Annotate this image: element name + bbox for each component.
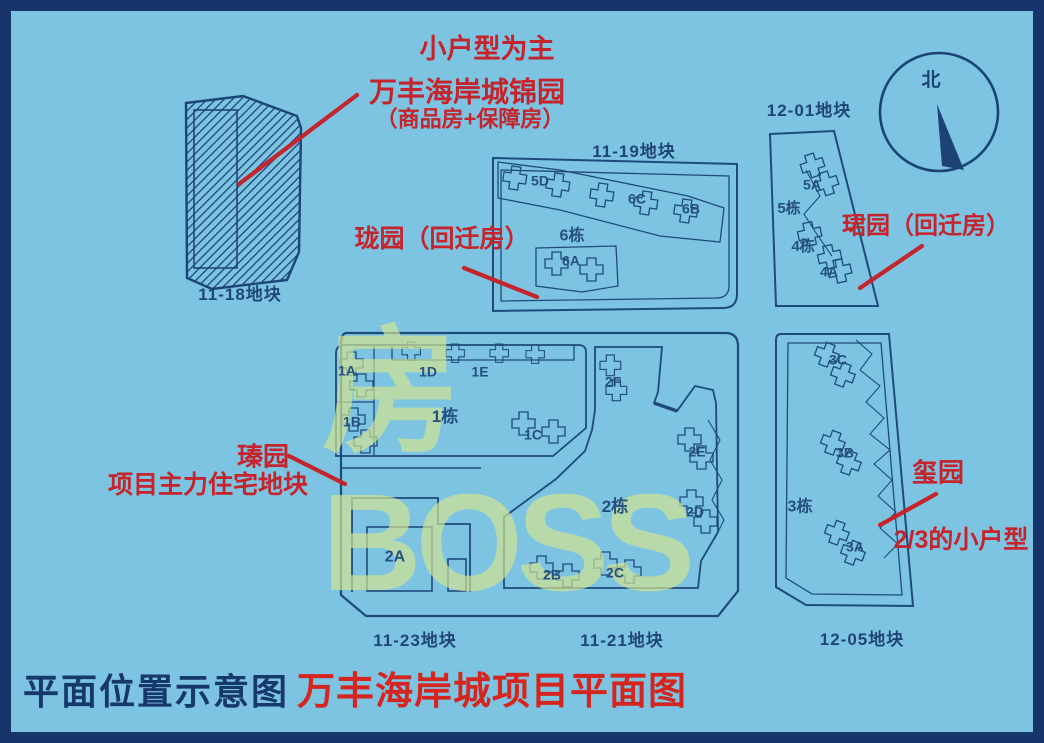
plot-11-19-shape bbox=[493, 158, 737, 311]
site-plan-image: 房BOSS 北 小户型为主 万丰海岸城锦园 （商品房+保障房） 珑园（回迁房） … bbox=[0, 0, 1044, 743]
building-label-1e: 1E bbox=[471, 365, 488, 380]
building-label-2c: 2C bbox=[606, 566, 624, 581]
building-label-1c: 1C bbox=[524, 428, 542, 443]
building-label-6a: 6A bbox=[562, 254, 580, 269]
caption-project-title: 万丰海岸城项目平面图 bbox=[297, 673, 687, 713]
plot-label-12-05: 12-05地块 bbox=[820, 631, 904, 649]
building-label-2dong: 2栋 bbox=[602, 498, 628, 516]
building-label-4a: 4A bbox=[820, 265, 838, 280]
annotation-junyuan: 珺园（回迁房） bbox=[842, 213, 1010, 238]
annotation-xiyuan-line1: 玺园 bbox=[912, 459, 964, 486]
building-label-2f: 2F bbox=[605, 375, 621, 390]
plot-label-12-01: 12-01地块 bbox=[767, 102, 851, 120]
building-label-1b: 1B bbox=[343, 415, 361, 430]
building-label-1d: 1D bbox=[419, 365, 437, 380]
building-label-2e: 2E bbox=[688, 445, 705, 460]
north-label: 北 bbox=[921, 71, 940, 91]
building-label-3c: 3C bbox=[829, 353, 847, 368]
plot-label-11-21: 11-21地块 bbox=[580, 632, 664, 650]
annotation-jinyuan-line1: 小户型为主 bbox=[420, 35, 555, 63]
building-label-5a: 5A bbox=[803, 178, 821, 193]
central-plot-shape bbox=[336, 333, 738, 616]
building-label-1dong: 1栋 bbox=[432, 408, 458, 426]
plot-label-11-23: 11-23地块 bbox=[373, 632, 457, 650]
annotation-jinyuan-line3: （商品房+保障房） bbox=[376, 107, 565, 130]
annotation-longyuan: 珑园（回迁房） bbox=[354, 226, 529, 252]
annotation-zhenyuan-line2: 项目主力住宅地块 bbox=[108, 472, 308, 498]
building-label-6b: 6B bbox=[682, 202, 700, 217]
building-label-2d: 2D bbox=[686, 505, 704, 520]
plot-label-11-18: 11-18地块 bbox=[198, 286, 282, 304]
plot-12-05-shape bbox=[776, 334, 913, 606]
building-label-6c: 6C bbox=[628, 192, 646, 207]
building-label-6dong: 6栋 bbox=[560, 229, 585, 246]
building-label-2b: 2B bbox=[543, 568, 561, 583]
building-label-5dong: 5栋 bbox=[777, 201, 800, 217]
building-label-3a: 3A bbox=[846, 540, 864, 555]
annotation-jinyuan-line2: 万丰海岸城锦园 bbox=[369, 77, 565, 106]
plot-label-11-19: 11-19地块 bbox=[592, 143, 676, 161]
building-label-3b: 3B bbox=[836, 446, 854, 461]
annotation-xiyuan-line2: 2/3的小户型 bbox=[894, 527, 1029, 553]
caption-plan-schematic: 平面位置示意图 bbox=[23, 674, 289, 712]
building-label-1a: 1A bbox=[338, 364, 356, 379]
annotation-zhenyuan-line1: 瑧园 bbox=[237, 443, 289, 470]
building-label-3dong: 3栋 bbox=[788, 500, 813, 517]
building-label-2a: 2A bbox=[385, 550, 405, 567]
plot-11-18-shape bbox=[186, 96, 301, 289]
building-label-5d: 5D bbox=[531, 174, 549, 189]
building-label-4dong: 4栋 bbox=[791, 239, 814, 255]
